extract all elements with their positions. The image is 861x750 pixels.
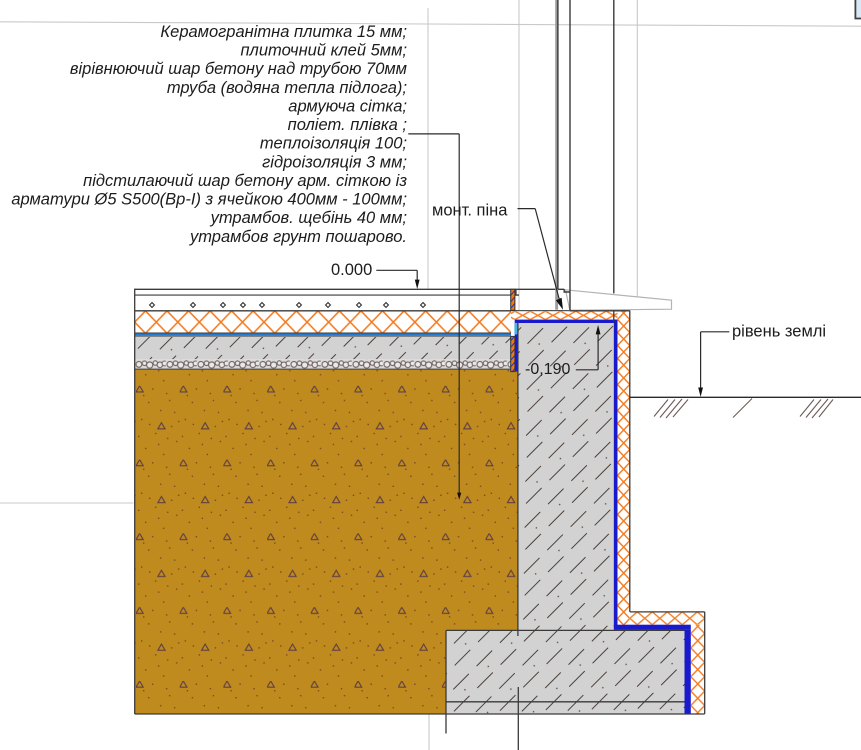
svg-text:гідроізоляція 3 мм;: гідроізоляція 3 мм; [262, 153, 407, 171]
svg-text:плиточний клей 5мм;: плиточний клей 5мм; [240, 42, 407, 60]
svg-text:рівень землі: рівень землі [732, 322, 826, 340]
svg-text:-0,190: -0,190 [525, 361, 570, 378]
svg-text:монт. піна: монт. піна [432, 202, 508, 220]
svg-text:утрамбов грунт пошарово.: утрамбов грунт пошарово. [189, 228, 407, 246]
svg-text:теплоізоляція 100;: теплоізоляція 100; [260, 135, 408, 153]
svg-text:вірівнюючий шар бетону над тру: вірівнюючий шар бетону над трубою 70мм [70, 60, 407, 78]
svg-text:арматури Ø5 S500(Вр-I) з ячейк: арматури Ø5 S500(Вр-I) з ячейкою 400мм -… [11, 191, 407, 209]
svg-text:0.000: 0.000 [331, 261, 372, 279]
svg-text:поліет. плівка ;: поліет. плівка ; [288, 116, 408, 134]
svg-text:труба (водяна тепла підлога);: труба (водяна тепла підлога); [167, 79, 408, 97]
svg-text:Керамогранітна плитка 15 мм;: Керамогранітна плитка 15 мм; [160, 23, 407, 41]
svg-text:армуюча сітка;: армуюча сітка; [288, 97, 407, 115]
svg-text:підстилаючий шар бетону арм. с: підстилаючий шар бетону арм. сіткою із [83, 172, 407, 190]
svg-text:утрамбов. щебінь 40 мм;: утрамбов. щебінь 40 мм; [210, 209, 408, 227]
